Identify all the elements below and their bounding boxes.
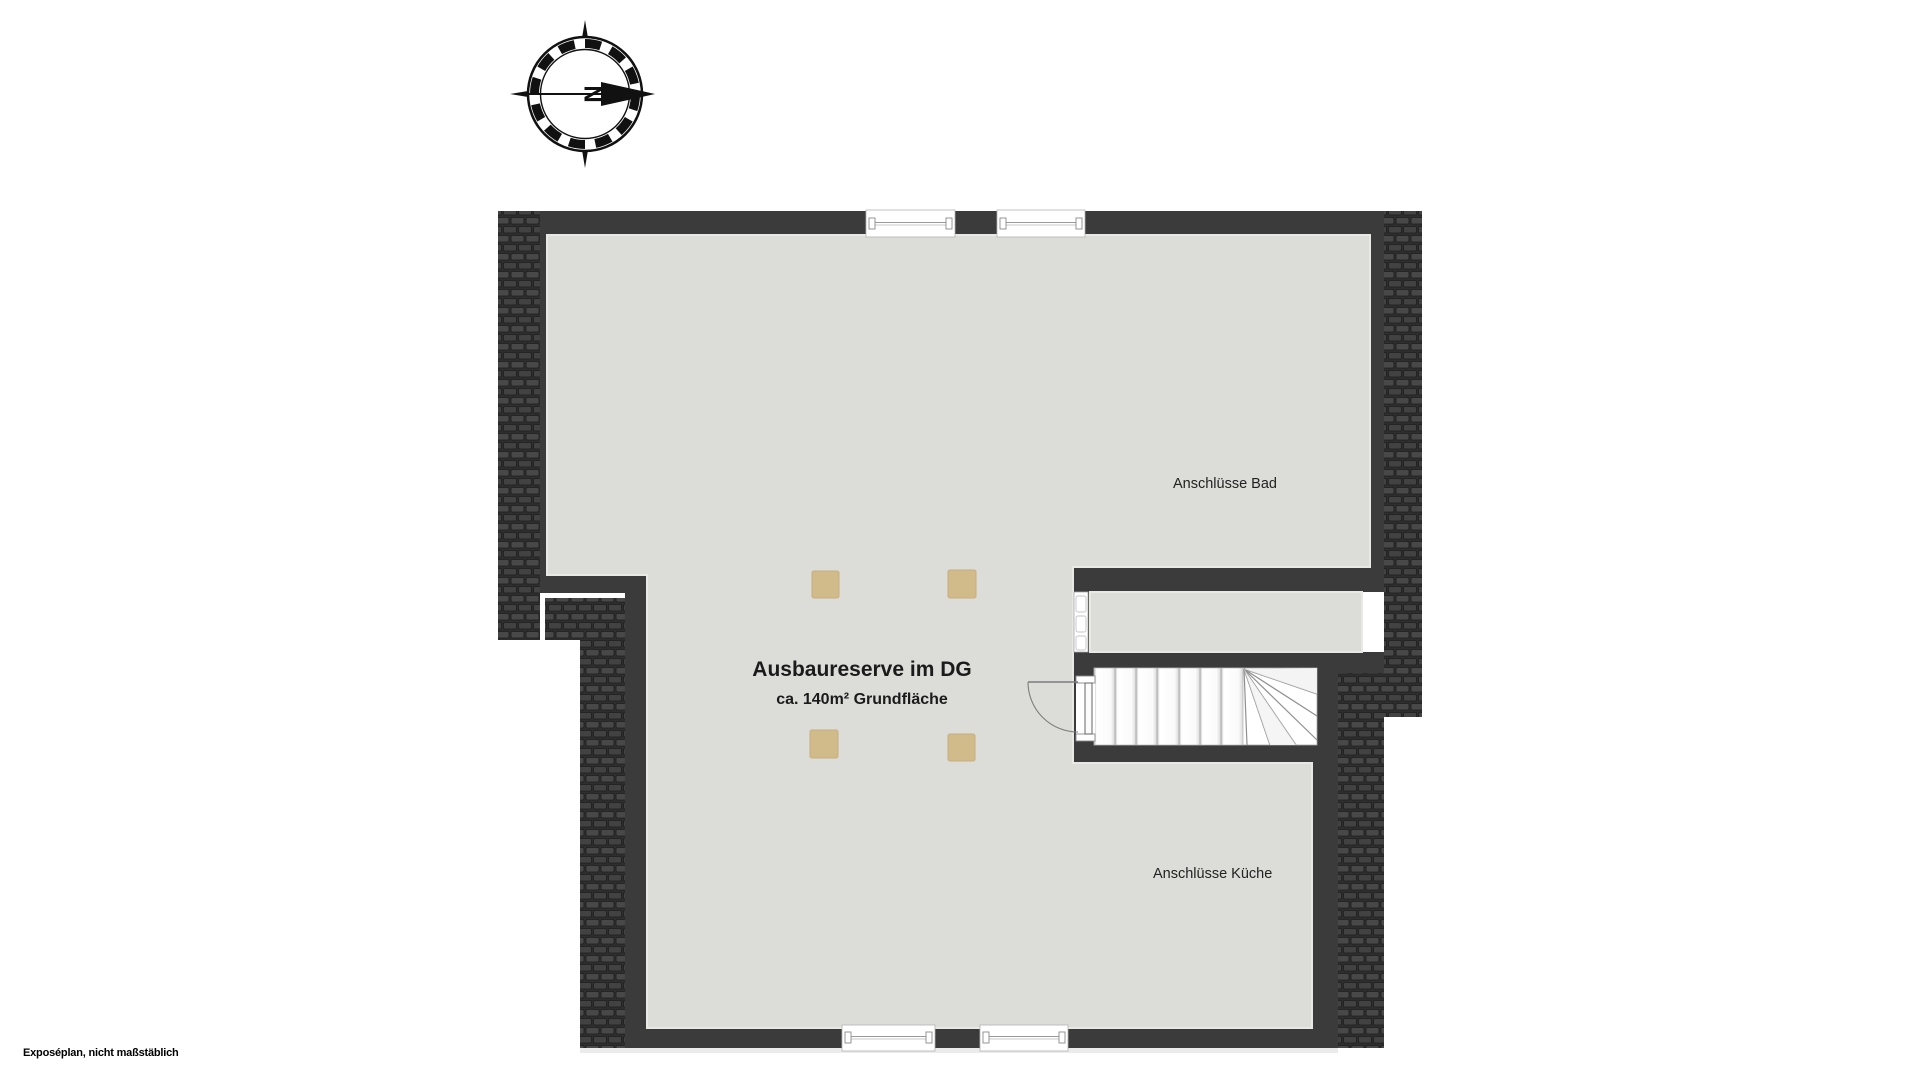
floor-corridor xyxy=(1090,592,1362,652)
door-leaf xyxy=(1085,683,1092,734)
compass-north-label: N xyxy=(579,85,606,102)
roof-strip-right-upper xyxy=(1384,211,1422,673)
room-subtitle: ca. 140m² Grundfläche xyxy=(776,691,948,708)
window-bottom-right xyxy=(980,1025,1068,1051)
floorplan-canvas: N xyxy=(0,0,1920,1080)
wall-left-lower xyxy=(625,593,647,1048)
wall-left-step xyxy=(540,575,647,593)
window-bottom-left xyxy=(842,1025,935,1051)
wall-corridor-top xyxy=(1073,565,1384,592)
wall-pillar-notch xyxy=(1092,577,1103,590)
window-top-right xyxy=(997,210,1085,237)
roof-strip-right-mid xyxy=(1338,673,1422,717)
stairs xyxy=(1094,668,1317,745)
bottom-wall-shadow xyxy=(580,1048,1338,1053)
window-corridor xyxy=(1074,592,1088,652)
column-top-right xyxy=(948,570,976,598)
window-top-left xyxy=(866,210,955,237)
annotation-bath: Anschlüsse Bad xyxy=(1173,476,1277,492)
footer-disclaimer: Exposéplan, nicht maßstäblich xyxy=(23,1047,179,1059)
roof-strip-right-lower xyxy=(1338,717,1384,1048)
room-title: Ausbaureserve im DG xyxy=(752,658,971,681)
column-bottom-right xyxy=(948,734,975,761)
annotation-kitchen: Anschlüsse Küche xyxy=(1153,866,1272,882)
wall-stairwell-bottom xyxy=(1073,745,1338,763)
roof-strip-left xyxy=(498,211,540,640)
wall-top xyxy=(498,211,1422,235)
roof-strip-step xyxy=(545,598,625,640)
wall-right-lower xyxy=(1312,745,1338,1048)
roof-strip-left-lower xyxy=(580,640,625,1048)
column-top-left xyxy=(812,571,839,598)
column-bottom-left xyxy=(810,730,838,758)
